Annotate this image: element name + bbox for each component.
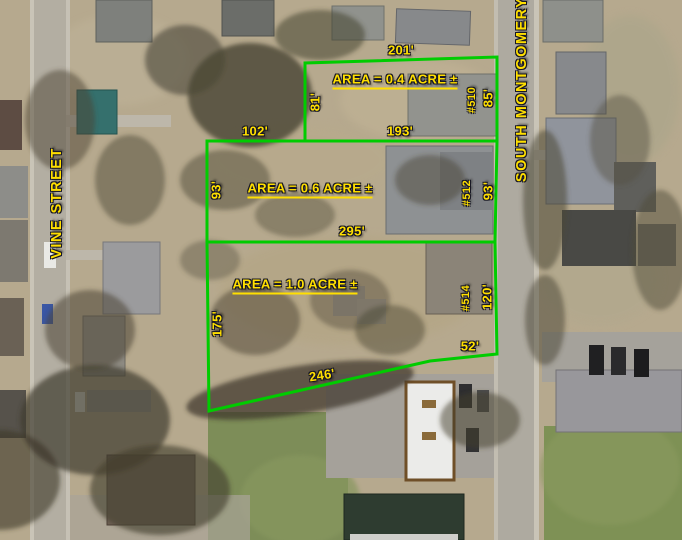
parcel-514-outline <box>207 242 497 411</box>
street-label-montgomery: SOUTH MONTGOMERY ST <box>514 0 530 182</box>
dimension-label-bottom-510: 193' <box>387 124 413 139</box>
area-label-510: AREA = 0.4 ACRE ± <box>332 72 457 87</box>
dimension-label-left-512: 93' <box>209 181 224 199</box>
dimension-label-top-510: 201' <box>388 43 414 58</box>
house-number-512: #512 <box>461 180 473 206</box>
area-label-514: AREA = 1.0 ACRE ± <box>232 277 357 292</box>
street-label-vine: VINE STREET <box>49 147 65 259</box>
area-label-512: AREA = 0.6 ACRE ± <box>247 181 372 196</box>
dimension-label-left-510: 81' <box>308 93 323 111</box>
dimension-label-right-512: 93' <box>481 182 496 200</box>
aerial-map: VINE STREET SOUTH MONTGOMERY ST 201' ARE… <box>0 0 682 540</box>
dimension-label-right-510: 85' <box>481 89 496 107</box>
dimension-label-bottom-512: 295' <box>339 224 365 239</box>
dimension-label-left-514: 175' <box>210 311 225 337</box>
dimension-label-right-514: 120' <box>480 284 495 310</box>
dimension-label-step-514: 52' <box>461 339 479 354</box>
house-number-510: #510 <box>466 87 478 113</box>
dimension-label-top-512: 102' <box>242 124 268 139</box>
house-number-514: #514 <box>460 285 472 311</box>
